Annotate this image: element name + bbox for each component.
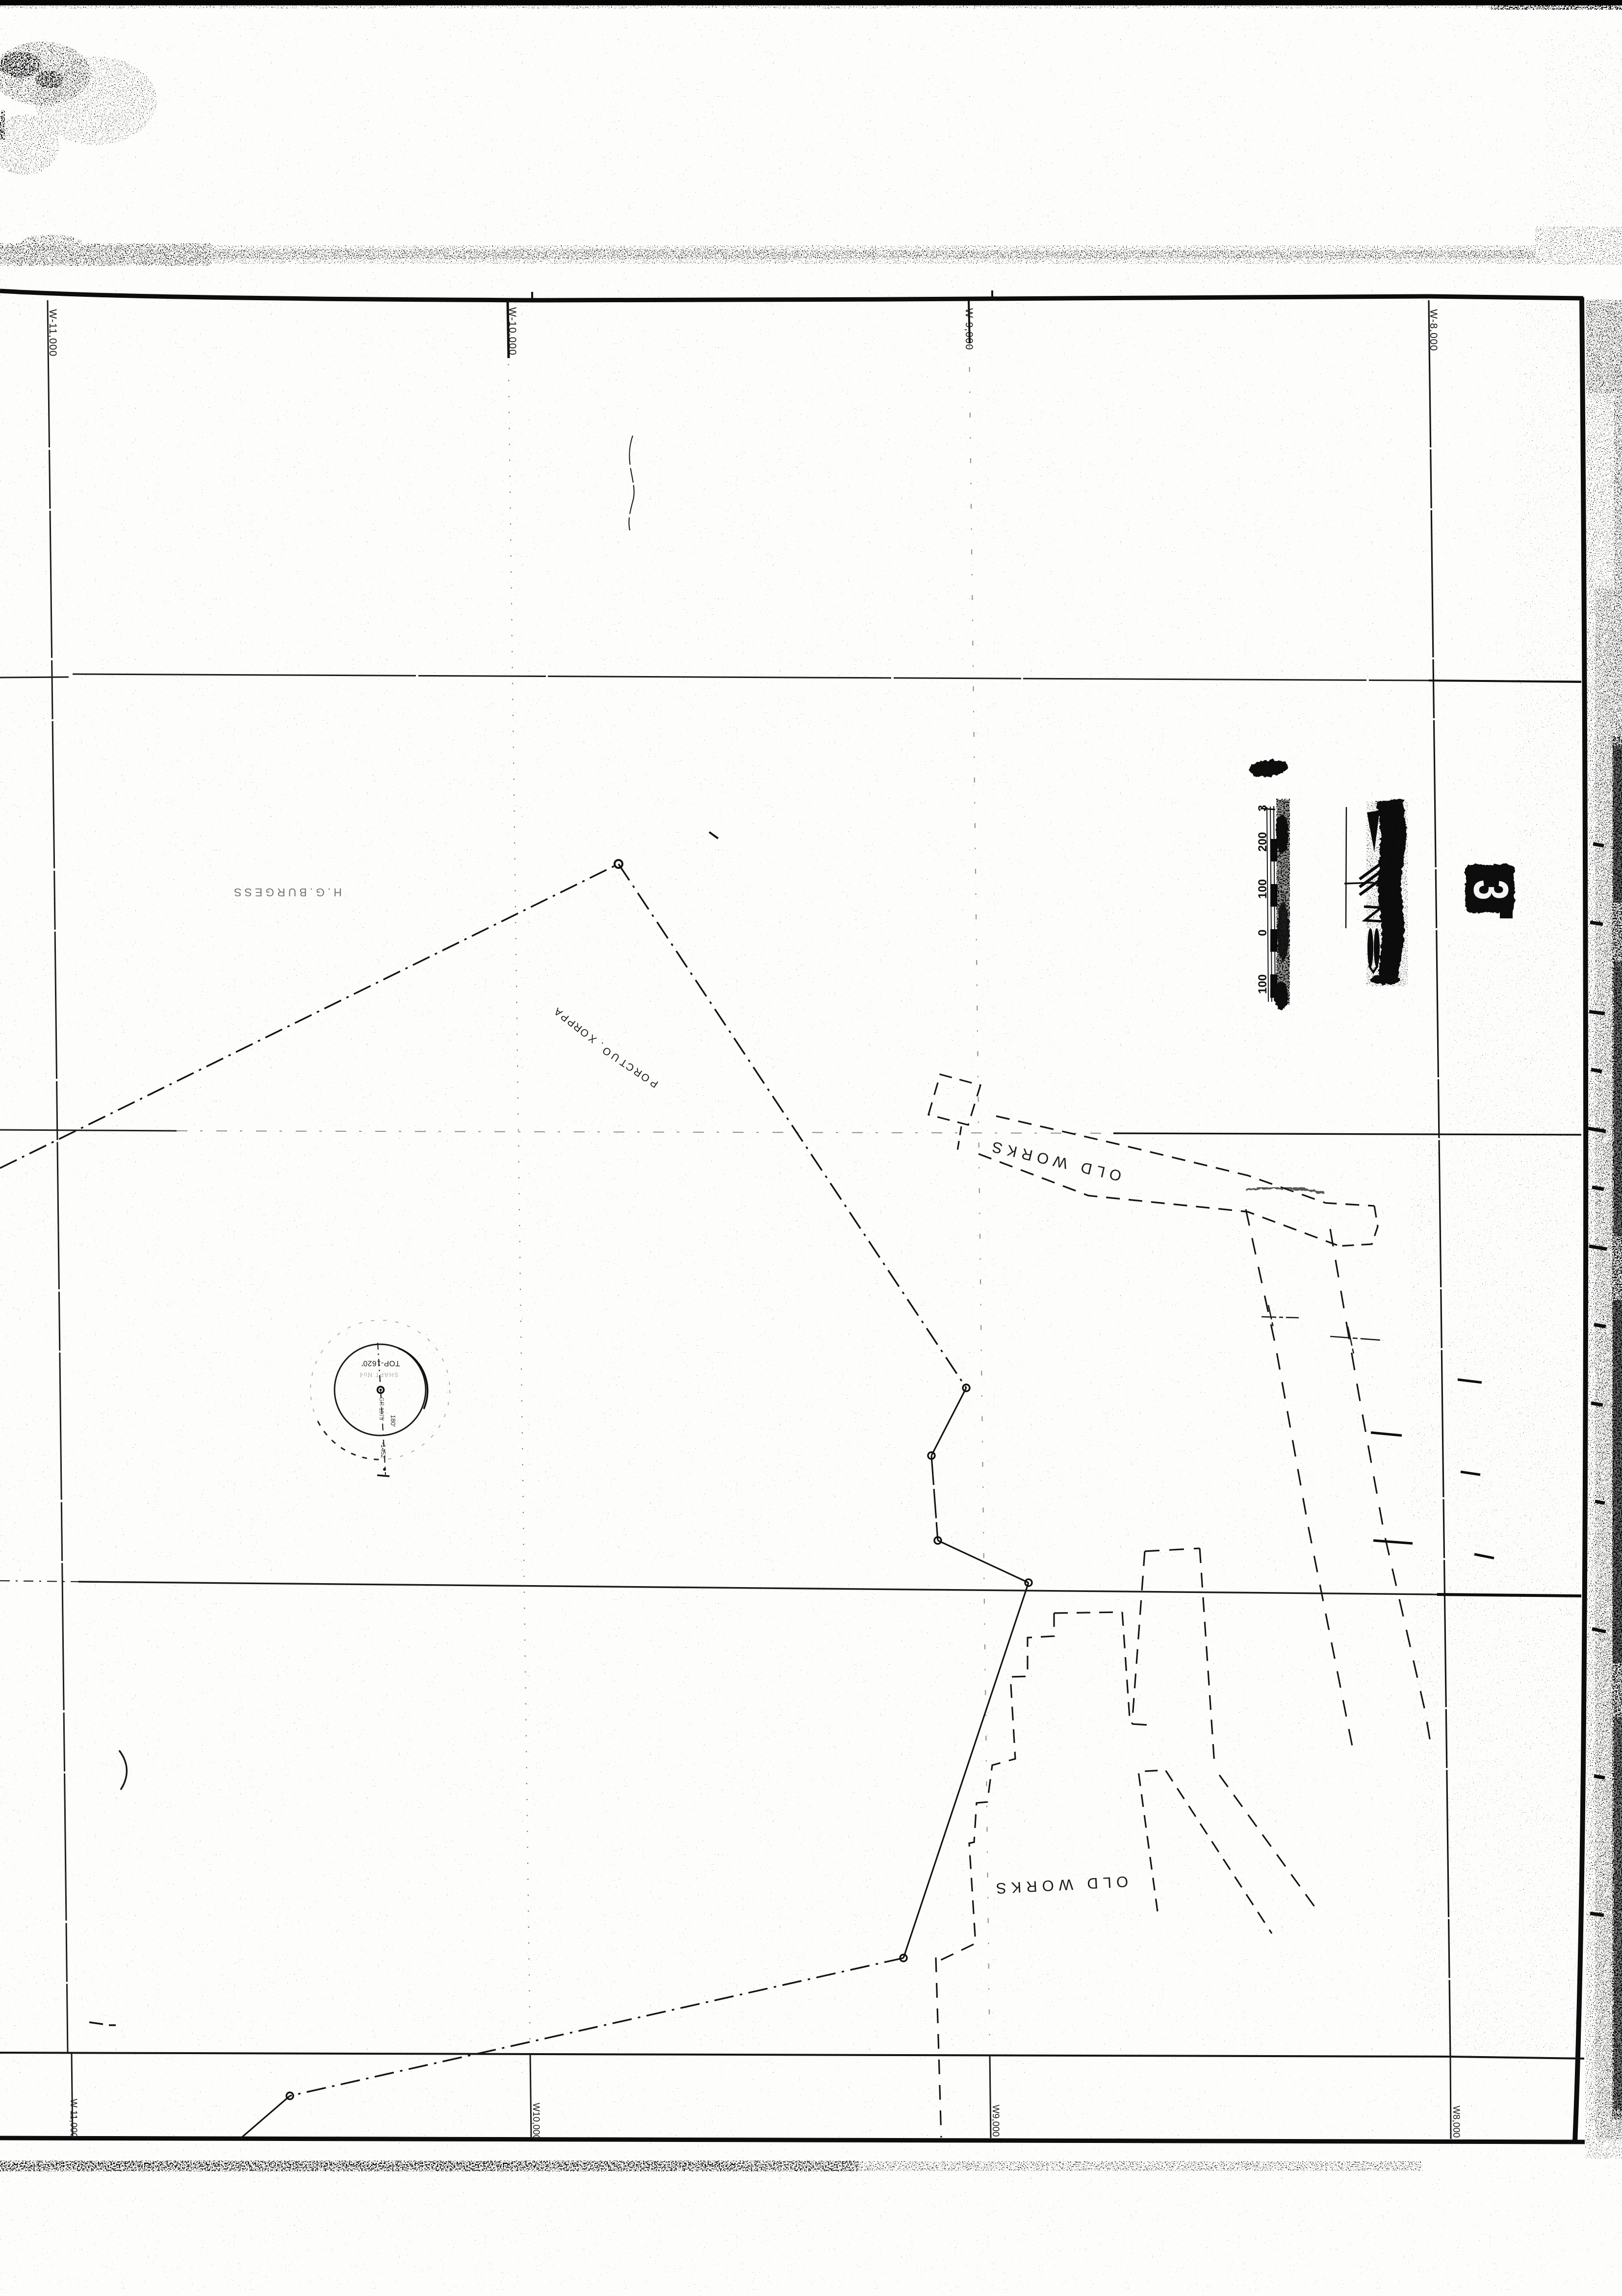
svg-text:100: 100 [1256,974,1269,994]
svg-text:200: 200 [1256,832,1269,852]
svg-text:W9,000: W9,000 [990,2105,1001,2137]
svg-text:0: 0 [1256,930,1269,936]
svg-text:W 11,000: W 11,000 [68,2099,78,2138]
svg-text:H.G.BURGESS: H.G.BURGESS [231,886,342,899]
svg-text:W-9,000: W-9,000 [963,308,975,350]
svg-text:TOP-1620': TOP-1620' [361,1359,400,1367]
svg-text:W-11,000: W-11,000 [47,309,58,357]
svg-text:GR-1575': GR-1575' [378,1397,384,1421]
svg-text:W10,000: W10,000 [531,2103,541,2140]
svg-text:180': 180' [389,1415,397,1427]
svg-text:Scale, feet: Scale, feet [1279,891,1288,931]
svg-text:-1452': -1452' [380,1442,386,1459]
svg-text:3: 3 [1256,805,1269,811]
svg-text:3: 3 [1464,880,1519,900]
svg-text:W-8,000: W-8,000 [1428,309,1439,351]
svg-text:W8,000: W8,000 [1451,2106,1461,2138]
svg-text:W-10,000: W-10,000 [507,307,518,356]
svg-text:100: 100 [1256,879,1269,899]
svg-text:SHAFT No4: SHAFT No4 [359,1371,399,1378]
